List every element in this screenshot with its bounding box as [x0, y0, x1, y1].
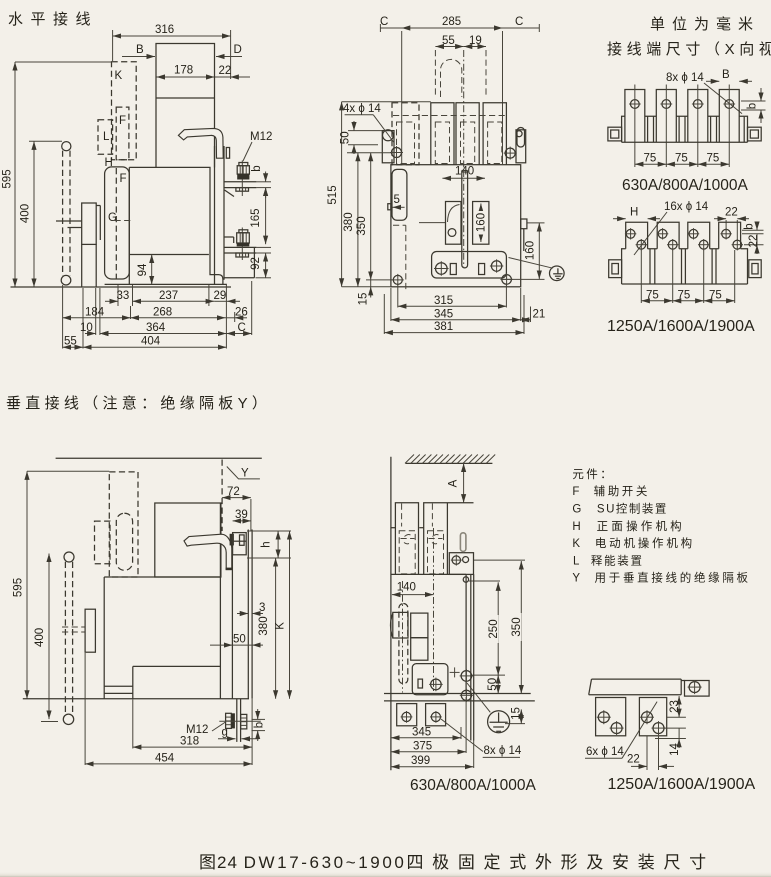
svg-text:C: C — [515, 16, 523, 28]
svg-text:94: 94 — [137, 263, 149, 276]
svg-text:454: 454 — [155, 752, 175, 764]
svg-text:H 正面操作机构: H 正面操作机构 — [572, 519, 685, 533]
svg-text:22: 22 — [219, 65, 232, 77]
svg-text:630A/800A/1000A: 630A/800A/1000A — [410, 777, 536, 794]
svg-text:b: b — [747, 103, 759, 109]
svg-text:H: H — [630, 207, 638, 219]
svg-text:4x ϕ 14: 4x ϕ 14 — [343, 103, 381, 115]
svg-text:316: 316 — [155, 24, 174, 36]
svg-text:160: 160 — [475, 213, 487, 232]
svg-text:318: 318 — [180, 736, 199, 748]
svg-text:K: K — [275, 622, 287, 630]
svg-text:178: 178 — [174, 65, 193, 77]
svg-text:Y: Y — [241, 468, 249, 480]
svg-text:G: G — [108, 212, 117, 224]
svg-text:140: 140 — [455, 166, 474, 178]
svg-text:D: D — [234, 44, 242, 56]
svg-text:19: 19 — [469, 35, 482, 47]
svg-text:350: 350 — [511, 617, 523, 636]
svg-text:图24 DW17-630~1900四极固定式外形及安装尺寸: 图24 DW17-630~1900四极固定式外形及安装尺寸 — [199, 853, 715, 872]
svg-text:单位为毫米: 单位为毫米 — [650, 15, 760, 33]
svg-text:元件：: 元件： — [572, 467, 614, 481]
svg-text:285: 285 — [442, 16, 461, 28]
svg-text:515: 515 — [327, 185, 339, 204]
svg-text:C: C — [380, 16, 388, 28]
svg-text:M12: M12 — [186, 724, 208, 736]
svg-text:b: b — [744, 223, 756, 229]
svg-text:14: 14 — [669, 743, 681, 756]
svg-text:垂直接线（注意：绝缘隔板Y）: 垂直接线（注意：绝缘隔板Y） — [6, 394, 271, 412]
svg-text:23: 23 — [669, 700, 681, 713]
svg-text:250: 250 — [488, 619, 500, 638]
svg-text:1250A/1600A/1900A: 1250A/1600A/1900A — [608, 776, 756, 793]
svg-text:K: K — [115, 70, 123, 82]
svg-text:345: 345 — [412, 726, 431, 738]
svg-text:g: g — [222, 727, 228, 739]
svg-text:75: 75 — [644, 153, 657, 165]
svg-text:Y 用于垂直接线的绝缘隔板: Y 用于垂直接线的绝缘隔板 — [572, 571, 750, 585]
svg-text:140: 140 — [397, 582, 416, 594]
svg-text:33: 33 — [117, 290, 130, 302]
svg-text:B: B — [136, 44, 144, 56]
svg-text:375: 375 — [413, 740, 432, 752]
svg-text:水平接线: 水平接线 — [8, 11, 98, 28]
svg-text:F 辅助开关: F 辅助开关 — [572, 484, 650, 498]
svg-text:29: 29 — [214, 290, 227, 302]
svg-text:15: 15 — [511, 707, 523, 720]
svg-text:400: 400 — [20, 204, 32, 223]
svg-text:21: 21 — [533, 308, 546, 320]
svg-text:50: 50 — [233, 634, 246, 646]
svg-text:22: 22 — [627, 754, 640, 766]
svg-text:F: F — [119, 115, 126, 127]
svg-text:G SU控制装置: G SU控制装置 — [572, 502, 668, 516]
svg-text:M12: M12 — [250, 131, 272, 143]
svg-text:50: 50 — [487, 678, 499, 691]
svg-text:h: h — [261, 541, 273, 547]
svg-text:F: F — [120, 173, 127, 185]
svg-text:39: 39 — [235, 509, 248, 521]
svg-text:b: b — [251, 165, 263, 171]
svg-text:55: 55 — [64, 336, 77, 348]
svg-text:B: B — [722, 69, 730, 81]
svg-text:8x ϕ 14: 8x ϕ 14 — [666, 72, 704, 84]
svg-text:75: 75 — [709, 289, 722, 301]
svg-text:75: 75 — [646, 289, 659, 301]
svg-text:A: A — [448, 479, 460, 487]
svg-text:380: 380 — [258, 616, 270, 635]
svg-text:L 释能装置: L 释能装置 — [573, 554, 644, 568]
svg-text:364: 364 — [146, 322, 166, 334]
svg-text:381: 381 — [434, 321, 453, 333]
svg-text:165: 165 — [250, 208, 262, 227]
svg-text:75: 75 — [678, 289, 691, 301]
svg-text:630A/800A/1000A: 630A/800A/1000A — [622, 177, 748, 194]
svg-text:10: 10 — [80, 322, 93, 334]
svg-text:16x ϕ 14: 16x ϕ 14 — [664, 201, 709, 213]
svg-text:75: 75 — [675, 153, 688, 165]
svg-text:400: 400 — [34, 628, 46, 647]
svg-text:22: 22 — [748, 235, 760, 248]
svg-text:350: 350 — [356, 216, 368, 235]
svg-text:L: L — [103, 131, 110, 143]
svg-text:595: 595 — [13, 578, 25, 597]
svg-text:237: 237 — [159, 290, 178, 302]
svg-text:184: 184 — [85, 307, 105, 319]
svg-text:55: 55 — [442, 35, 455, 47]
svg-text:72: 72 — [227, 486, 240, 498]
svg-text:399: 399 — [411, 755, 430, 767]
svg-text:b: b — [254, 722, 266, 728]
svg-text:15: 15 — [358, 293, 370, 306]
svg-text:315: 315 — [434, 295, 453, 307]
svg-text:380: 380 — [343, 212, 355, 231]
svg-text:345: 345 — [434, 308, 453, 320]
svg-text:3: 3 — [259, 602, 265, 614]
svg-text:K 电动机操作机构: K 电动机操作机构 — [572, 536, 695, 550]
svg-text:1250A/1600A/1900A: 1250A/1600A/1900A — [607, 318, 755, 335]
svg-text:160: 160 — [525, 241, 537, 260]
svg-text:8x ϕ 14: 8x ϕ 14 — [484, 745, 522, 757]
svg-text:268: 268 — [153, 307, 172, 319]
svg-text:22: 22 — [725, 207, 738, 219]
svg-text:26: 26 — [235, 307, 248, 319]
svg-text:H: H — [105, 157, 113, 169]
svg-text:404: 404 — [141, 336, 161, 348]
svg-text:5: 5 — [394, 194, 400, 206]
svg-text:92: 92 — [250, 257, 262, 270]
svg-text:595: 595 — [2, 169, 14, 188]
svg-text:C: C — [238, 322, 246, 334]
svg-text:75: 75 — [707, 153, 720, 165]
svg-text:6x ϕ 14: 6x ϕ 14 — [586, 746, 624, 758]
svg-text:接线端尺寸（X向视图）: 接线端尺寸（X向视图） — [607, 41, 771, 58]
svg-text:50: 50 — [340, 131, 352, 144]
